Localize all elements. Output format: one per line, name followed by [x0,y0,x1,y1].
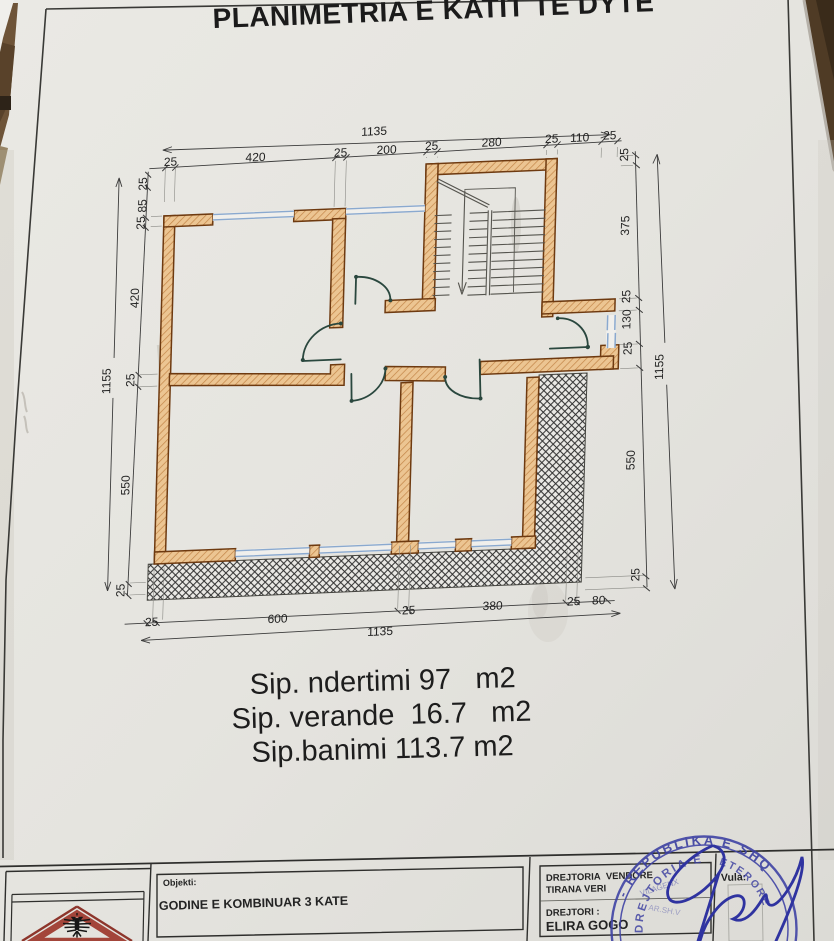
svg-text:ELIRA GOGO: ELIRA GOGO [546,917,629,934]
svg-text:25: 25 [619,289,633,303]
svg-text:25: 25 [621,341,635,355]
svg-text:130: 130 [619,309,634,330]
svg-text:550: 550 [118,475,133,496]
svg-text:80: 80 [592,593,606,608]
svg-text:Objekti:: Objekti: [163,877,197,888]
svg-text:600: 600 [267,611,288,626]
svg-text:25: 25 [628,567,642,581]
svg-text:25: 25 [545,132,559,147]
svg-text:25: 25 [145,615,159,630]
svg-text:380: 380 [482,598,503,613]
svg-text:550: 550 [623,449,638,470]
svg-text:85: 85 [135,199,149,213]
svg-text:25: 25 [134,216,148,230]
svg-text:110: 110 [570,130,590,145]
svg-text:25: 25 [123,373,137,387]
svg-text:25: 25 [617,147,631,161]
svg-text:280: 280 [481,135,502,150]
svg-text:25: 25 [425,139,439,154]
svg-text:375: 375 [618,215,633,236]
svg-text:25: 25 [567,594,581,609]
svg-text:25: 25 [402,603,416,618]
svg-text:1155: 1155 [99,368,114,395]
svg-text:25: 25 [603,128,617,143]
svg-text:1135: 1135 [367,624,394,639]
svg-text:25: 25 [113,583,127,597]
svg-text:25: 25 [164,155,178,170]
svg-text:200: 200 [376,142,397,157]
svg-text:TIRANA VERI: TIRANA VERI [546,883,607,896]
svg-text:420: 420 [245,150,266,165]
svg-text:420: 420 [127,288,142,309]
svg-text:25: 25 [334,145,348,160]
svg-text:1155: 1155 [652,353,667,380]
svg-text:25: 25 [136,177,150,191]
svg-text:1135: 1135 [361,124,388,139]
